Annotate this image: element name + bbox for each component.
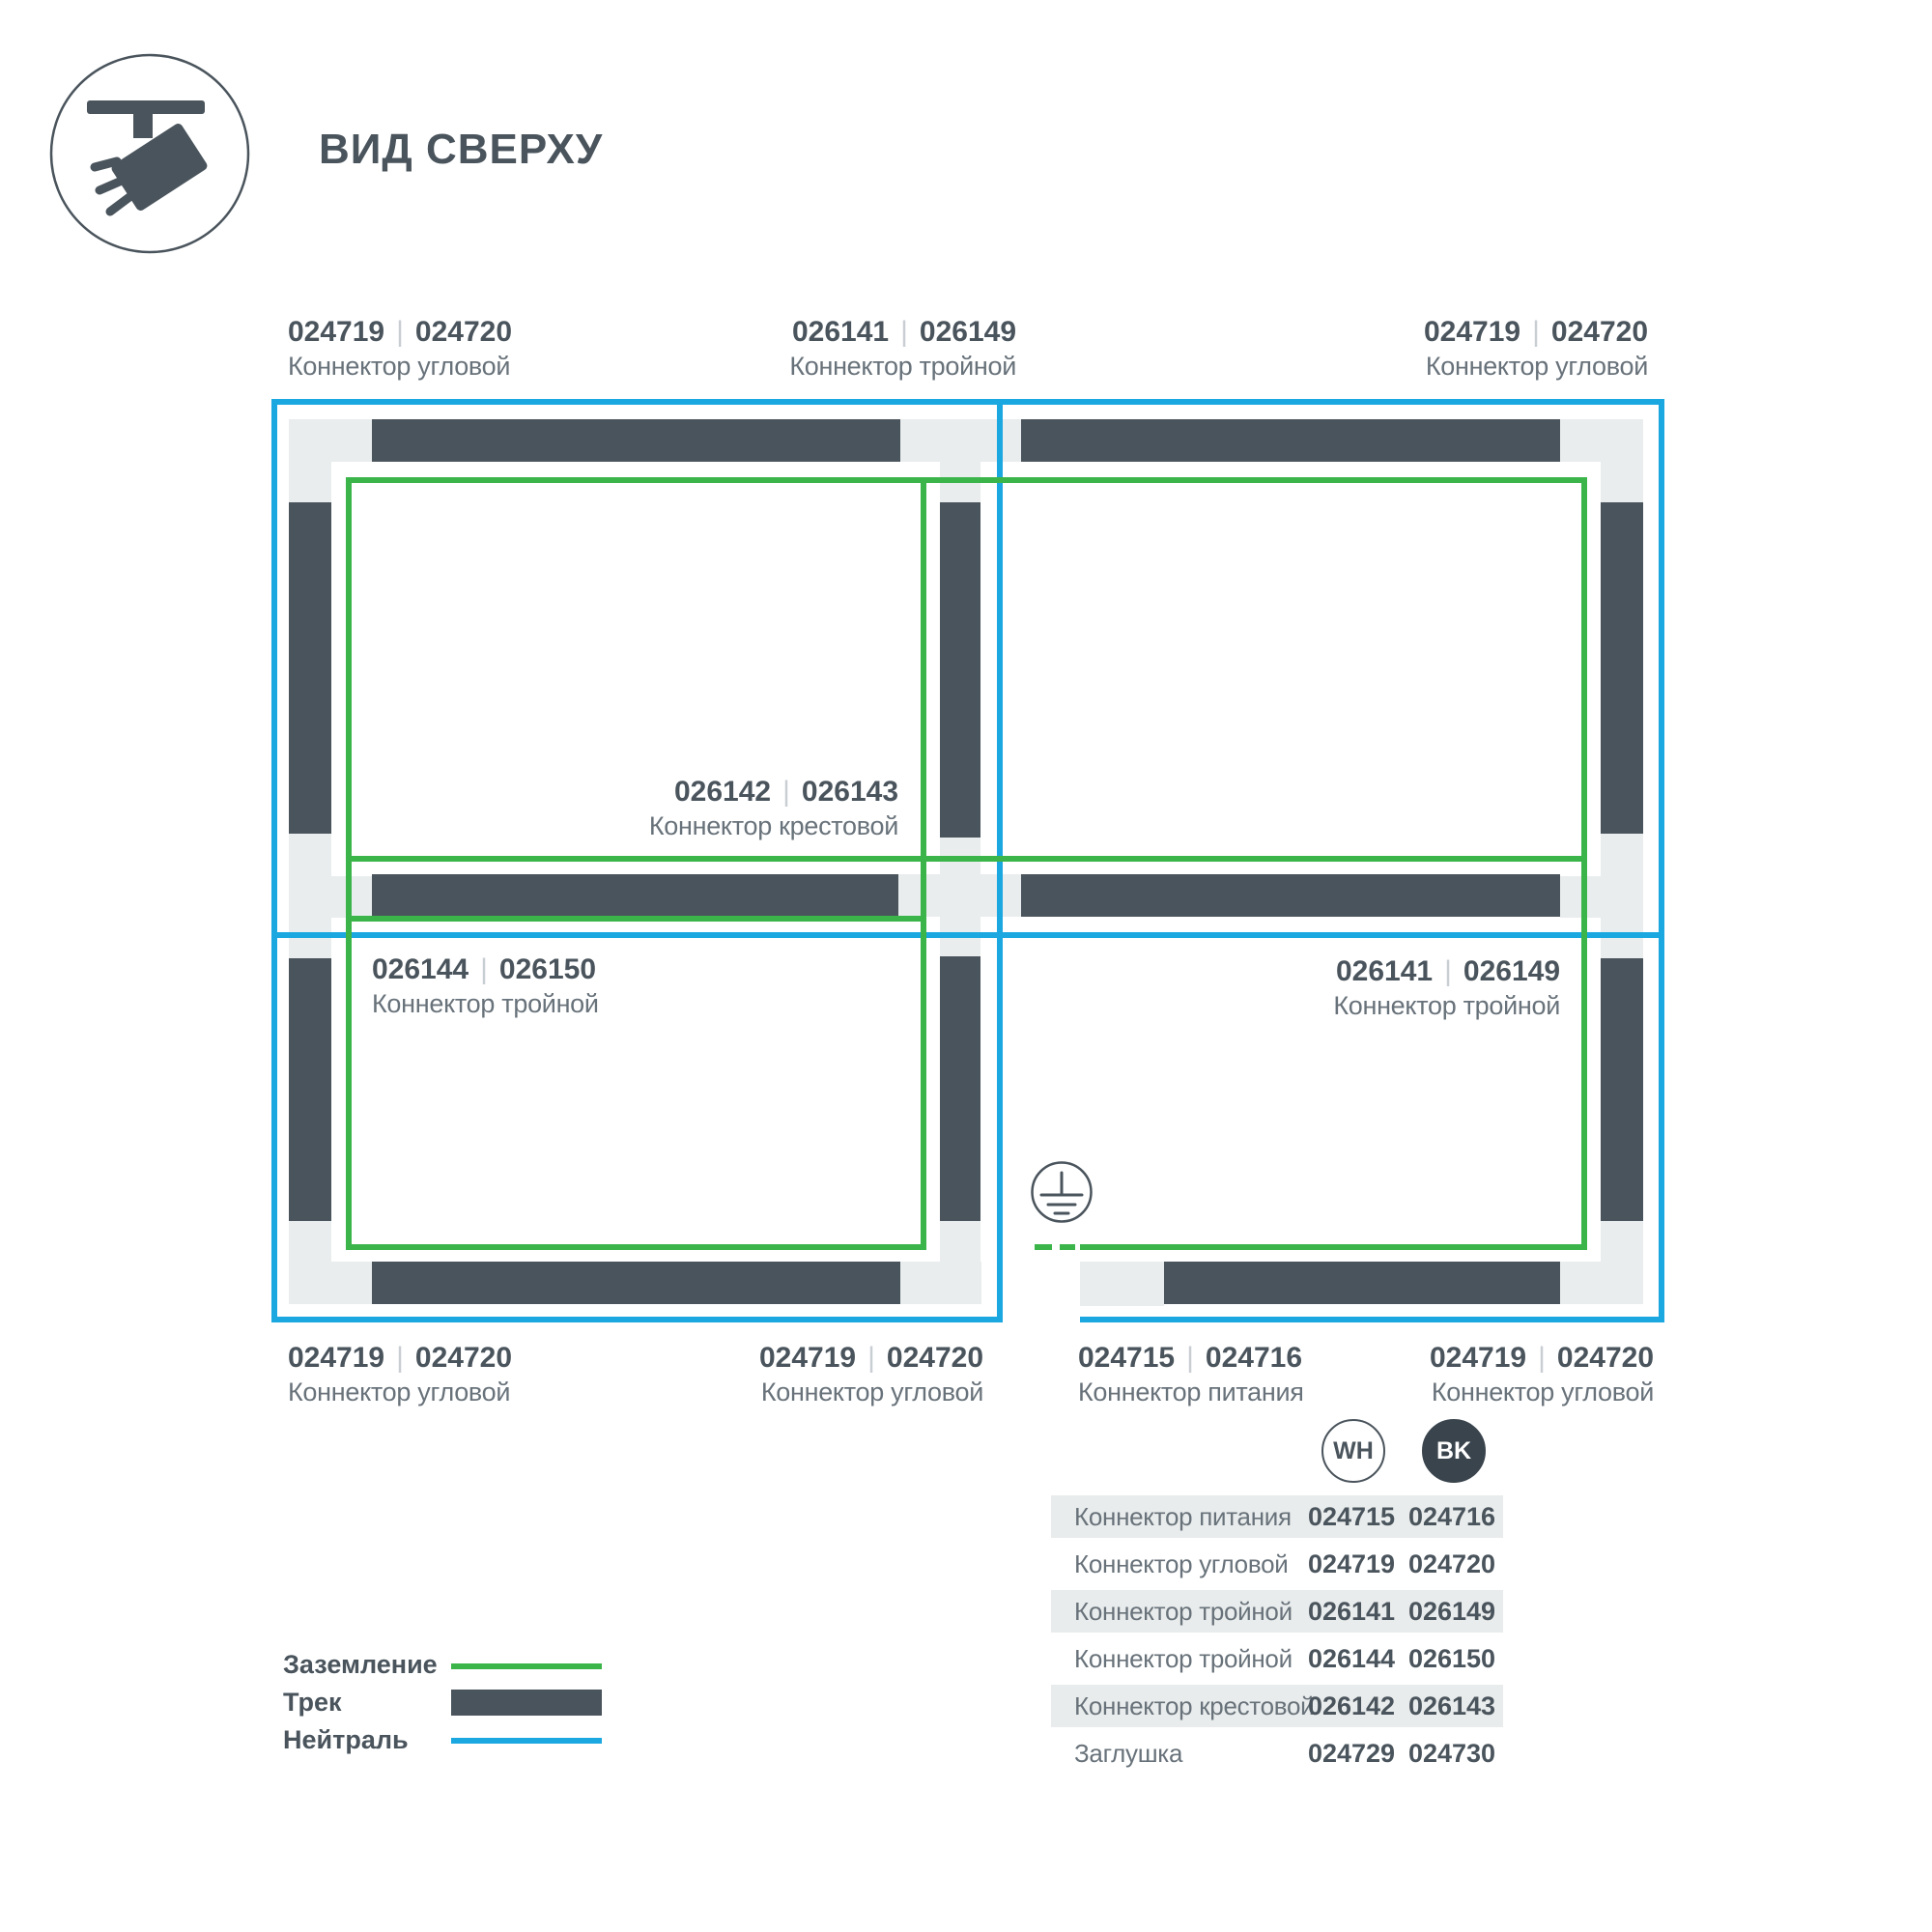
triple-connector-right bbox=[1601, 834, 1643, 958]
track-segment bbox=[1164, 1262, 1560, 1304]
neutral-line-bottom-left bbox=[271, 1317, 1003, 1322]
corner-connector-top-left bbox=[289, 419, 372, 462]
part-codes: 024719|024720 bbox=[1424, 317, 1648, 348]
separator: | bbox=[856, 1342, 887, 1374]
part-codes: 024715|024716 bbox=[1078, 1343, 1304, 1374]
part-name-cell: Коннектор тройной bbox=[1074, 1637, 1293, 1680]
part-name: Коннектор угловой bbox=[1424, 352, 1648, 381]
part-name-cell: Коннектор тройной bbox=[1074, 1590, 1293, 1633]
table-row: Коннектор угловой 024719 024720 bbox=[1051, 1543, 1503, 1585]
bk-code-cell: 026149 bbox=[1379, 1590, 1524, 1633]
separator: | bbox=[771, 776, 802, 808]
ground-line-feed-dash bbox=[1035, 1244, 1052, 1250]
ground-line-bottom-right bbox=[1080, 1244, 1587, 1250]
track-segment bbox=[372, 874, 898, 917]
neutral-line-top bbox=[271, 399, 1664, 405]
ground-line-bottom-left bbox=[346, 1244, 926, 1250]
part-codes: 026141|026149 bbox=[1333, 956, 1560, 987]
part-name-cell: Коннектор угловой bbox=[1074, 1543, 1288, 1585]
corner-connector-bottom-right bbox=[1601, 1221, 1643, 1262]
callout-corner-connector-bottom-middle: 024719|024720 Коннектор угловой bbox=[759, 1343, 983, 1406]
corner-connector-bottom-middle bbox=[900, 1262, 981, 1304]
ground-line-middle-vertical bbox=[921, 477, 926, 1250]
legend-neutral-swatch bbox=[451, 1738, 602, 1744]
ground-line-upper-middle bbox=[346, 856, 1587, 862]
part-codes: 024719|024720 bbox=[288, 317, 512, 348]
legend-neutral-label: Нейтраль bbox=[283, 1723, 409, 1756]
ground-line-right-vertical bbox=[1581, 477, 1587, 1250]
legend-ground-label: Заземление bbox=[283, 1648, 438, 1681]
track-segment bbox=[372, 1262, 900, 1304]
triple-connector-right bbox=[1560, 876, 1601, 918]
separator: | bbox=[384, 1342, 415, 1374]
part-name: Коннектор угловой bbox=[288, 1378, 512, 1406]
legend-track-swatch bbox=[451, 1690, 602, 1716]
ground-line-lower-middle-left bbox=[346, 916, 926, 922]
color-badge-black-label: BK bbox=[1436, 1437, 1471, 1465]
part-name-cell: Коннектор питания bbox=[1074, 1495, 1292, 1538]
callout-power-feed-connector: 024715|024716 Коннектор питания bbox=[1078, 1343, 1304, 1406]
ground-line-left-vertical bbox=[346, 477, 352, 1250]
track-segment bbox=[1601, 502, 1643, 834]
ground-line-top bbox=[346, 477, 1587, 483]
color-badge-white-label: WH bbox=[1333, 1437, 1374, 1465]
track-segment bbox=[1021, 419, 1560, 462]
track-segment bbox=[1601, 958, 1643, 1221]
part-codes: 024719|024720 bbox=[288, 1343, 512, 1374]
separator: | bbox=[889, 316, 920, 348]
bk-code-cell: 026143 bbox=[1379, 1685, 1524, 1727]
power-feed-connector bbox=[1080, 1262, 1164, 1306]
part-codes: 026142|026143 bbox=[649, 777, 898, 808]
separator: | bbox=[469, 953, 499, 985]
separator: | bbox=[384, 316, 415, 348]
corner-connector-bottom-left bbox=[289, 1262, 372, 1304]
bk-code-cell: 024730 bbox=[1379, 1732, 1524, 1775]
corner-connector-bottom-middle bbox=[940, 1221, 980, 1262]
neutral-line-right bbox=[1659, 399, 1664, 1322]
neutral-line-left bbox=[271, 399, 277, 1322]
callout-cross-connector: 026142|026143 Коннектор крестовой bbox=[649, 777, 898, 840]
legend-ground-swatch bbox=[451, 1663, 602, 1669]
bk-code-cell: 026150 bbox=[1379, 1637, 1524, 1680]
callout-corner-connector-bottom-left: 024719|024720 Коннектор угловой bbox=[288, 1343, 512, 1406]
part-name: Коннектор угловой bbox=[1430, 1378, 1654, 1406]
part-name: Коннектор тройной bbox=[789, 352, 1016, 381]
track-spotlight-top-view-icon bbox=[46, 50, 253, 257]
triple-connector-left bbox=[289, 834, 331, 958]
part-name: Коннектор крестовой bbox=[649, 811, 898, 840]
bk-code-cell: 024720 bbox=[1379, 1543, 1524, 1585]
legend-track-label: Трек bbox=[283, 1686, 342, 1719]
bk-code-cell: 024716 bbox=[1379, 1495, 1524, 1538]
neutral-line-bottom-right bbox=[1080, 1317, 1664, 1322]
part-name: Коннектор тройной bbox=[1333, 991, 1560, 1020]
corner-connector-top-right bbox=[1601, 462, 1643, 502]
neutral-line-middle-horizontal bbox=[271, 932, 1664, 938]
track-segment bbox=[1021, 874, 1560, 917]
part-codes: 024719|024720 bbox=[1430, 1343, 1654, 1374]
corner-connector-bottom-right bbox=[1560, 1262, 1643, 1304]
table-row: Коннектор тройной 026144 026150 bbox=[1051, 1637, 1503, 1680]
separator: | bbox=[1433, 955, 1463, 987]
separator: | bbox=[1175, 1342, 1206, 1374]
page-title: ВИД СВЕРХУ bbox=[319, 126, 603, 174]
track-segment bbox=[289, 958, 331, 1221]
part-name: Коннектор питания bbox=[1078, 1378, 1304, 1406]
part-name: Коннектор угловой bbox=[288, 352, 512, 381]
table-row: Коннектор крестовой 026142 026143 bbox=[1051, 1685, 1503, 1727]
corner-connector-top-left bbox=[289, 462, 331, 502]
color-badge-black: BK bbox=[1422, 1419, 1486, 1483]
track-segment bbox=[940, 956, 980, 1221]
earth-ground-icon bbox=[1030, 1160, 1094, 1224]
callout-triple-connector-top: 026141|026149 Коннектор тройной bbox=[789, 317, 1016, 381]
callout-triple-connector-left: 026144|026150 Коннектор тройной bbox=[372, 954, 599, 1018]
corner-connector-top-right bbox=[1560, 419, 1643, 462]
table-row: Заглушка 024729 024730 bbox=[1051, 1732, 1503, 1775]
part-codes: 026144|026150 bbox=[372, 954, 599, 985]
track-segment bbox=[372, 419, 900, 462]
color-badge-white: WH bbox=[1321, 1419, 1385, 1483]
part-codes: 026141|026149 bbox=[789, 317, 1016, 348]
part-codes: 024719|024720 bbox=[759, 1343, 983, 1374]
callout-corner-connector-top-left: 024719|024720 Коннектор угловой bbox=[288, 317, 512, 381]
separator: | bbox=[1520, 316, 1551, 348]
track-segment bbox=[289, 502, 331, 834]
triple-connector-top bbox=[900, 419, 1021, 462]
table-row: Коннектор тройной 026141 026149 bbox=[1051, 1590, 1503, 1633]
part-name: Коннектор тройной bbox=[372, 989, 599, 1018]
track-segment bbox=[940, 502, 980, 838]
corner-connector-bottom-left bbox=[289, 1221, 331, 1262]
callout-triple-connector-right: 026141|026149 Коннектор тройной bbox=[1333, 956, 1560, 1020]
page: ВИД СВЕРХУ bbox=[0, 0, 1932, 1932]
separator: | bbox=[1526, 1342, 1557, 1374]
callout-corner-connector-bottom-right: 024719|024720 Коннектор угловой bbox=[1430, 1343, 1654, 1406]
part-name: Коннектор угловой bbox=[759, 1378, 983, 1406]
part-name-cell: Заглушка bbox=[1074, 1732, 1182, 1775]
ground-line-feed-dash bbox=[1060, 1244, 1075, 1250]
callout-corner-connector-top-right: 024719|024720 Коннектор угловой bbox=[1424, 317, 1648, 381]
triple-connector-left bbox=[331, 876, 372, 918]
table-row: Коннектор питания 024715 024716 bbox=[1051, 1495, 1503, 1538]
